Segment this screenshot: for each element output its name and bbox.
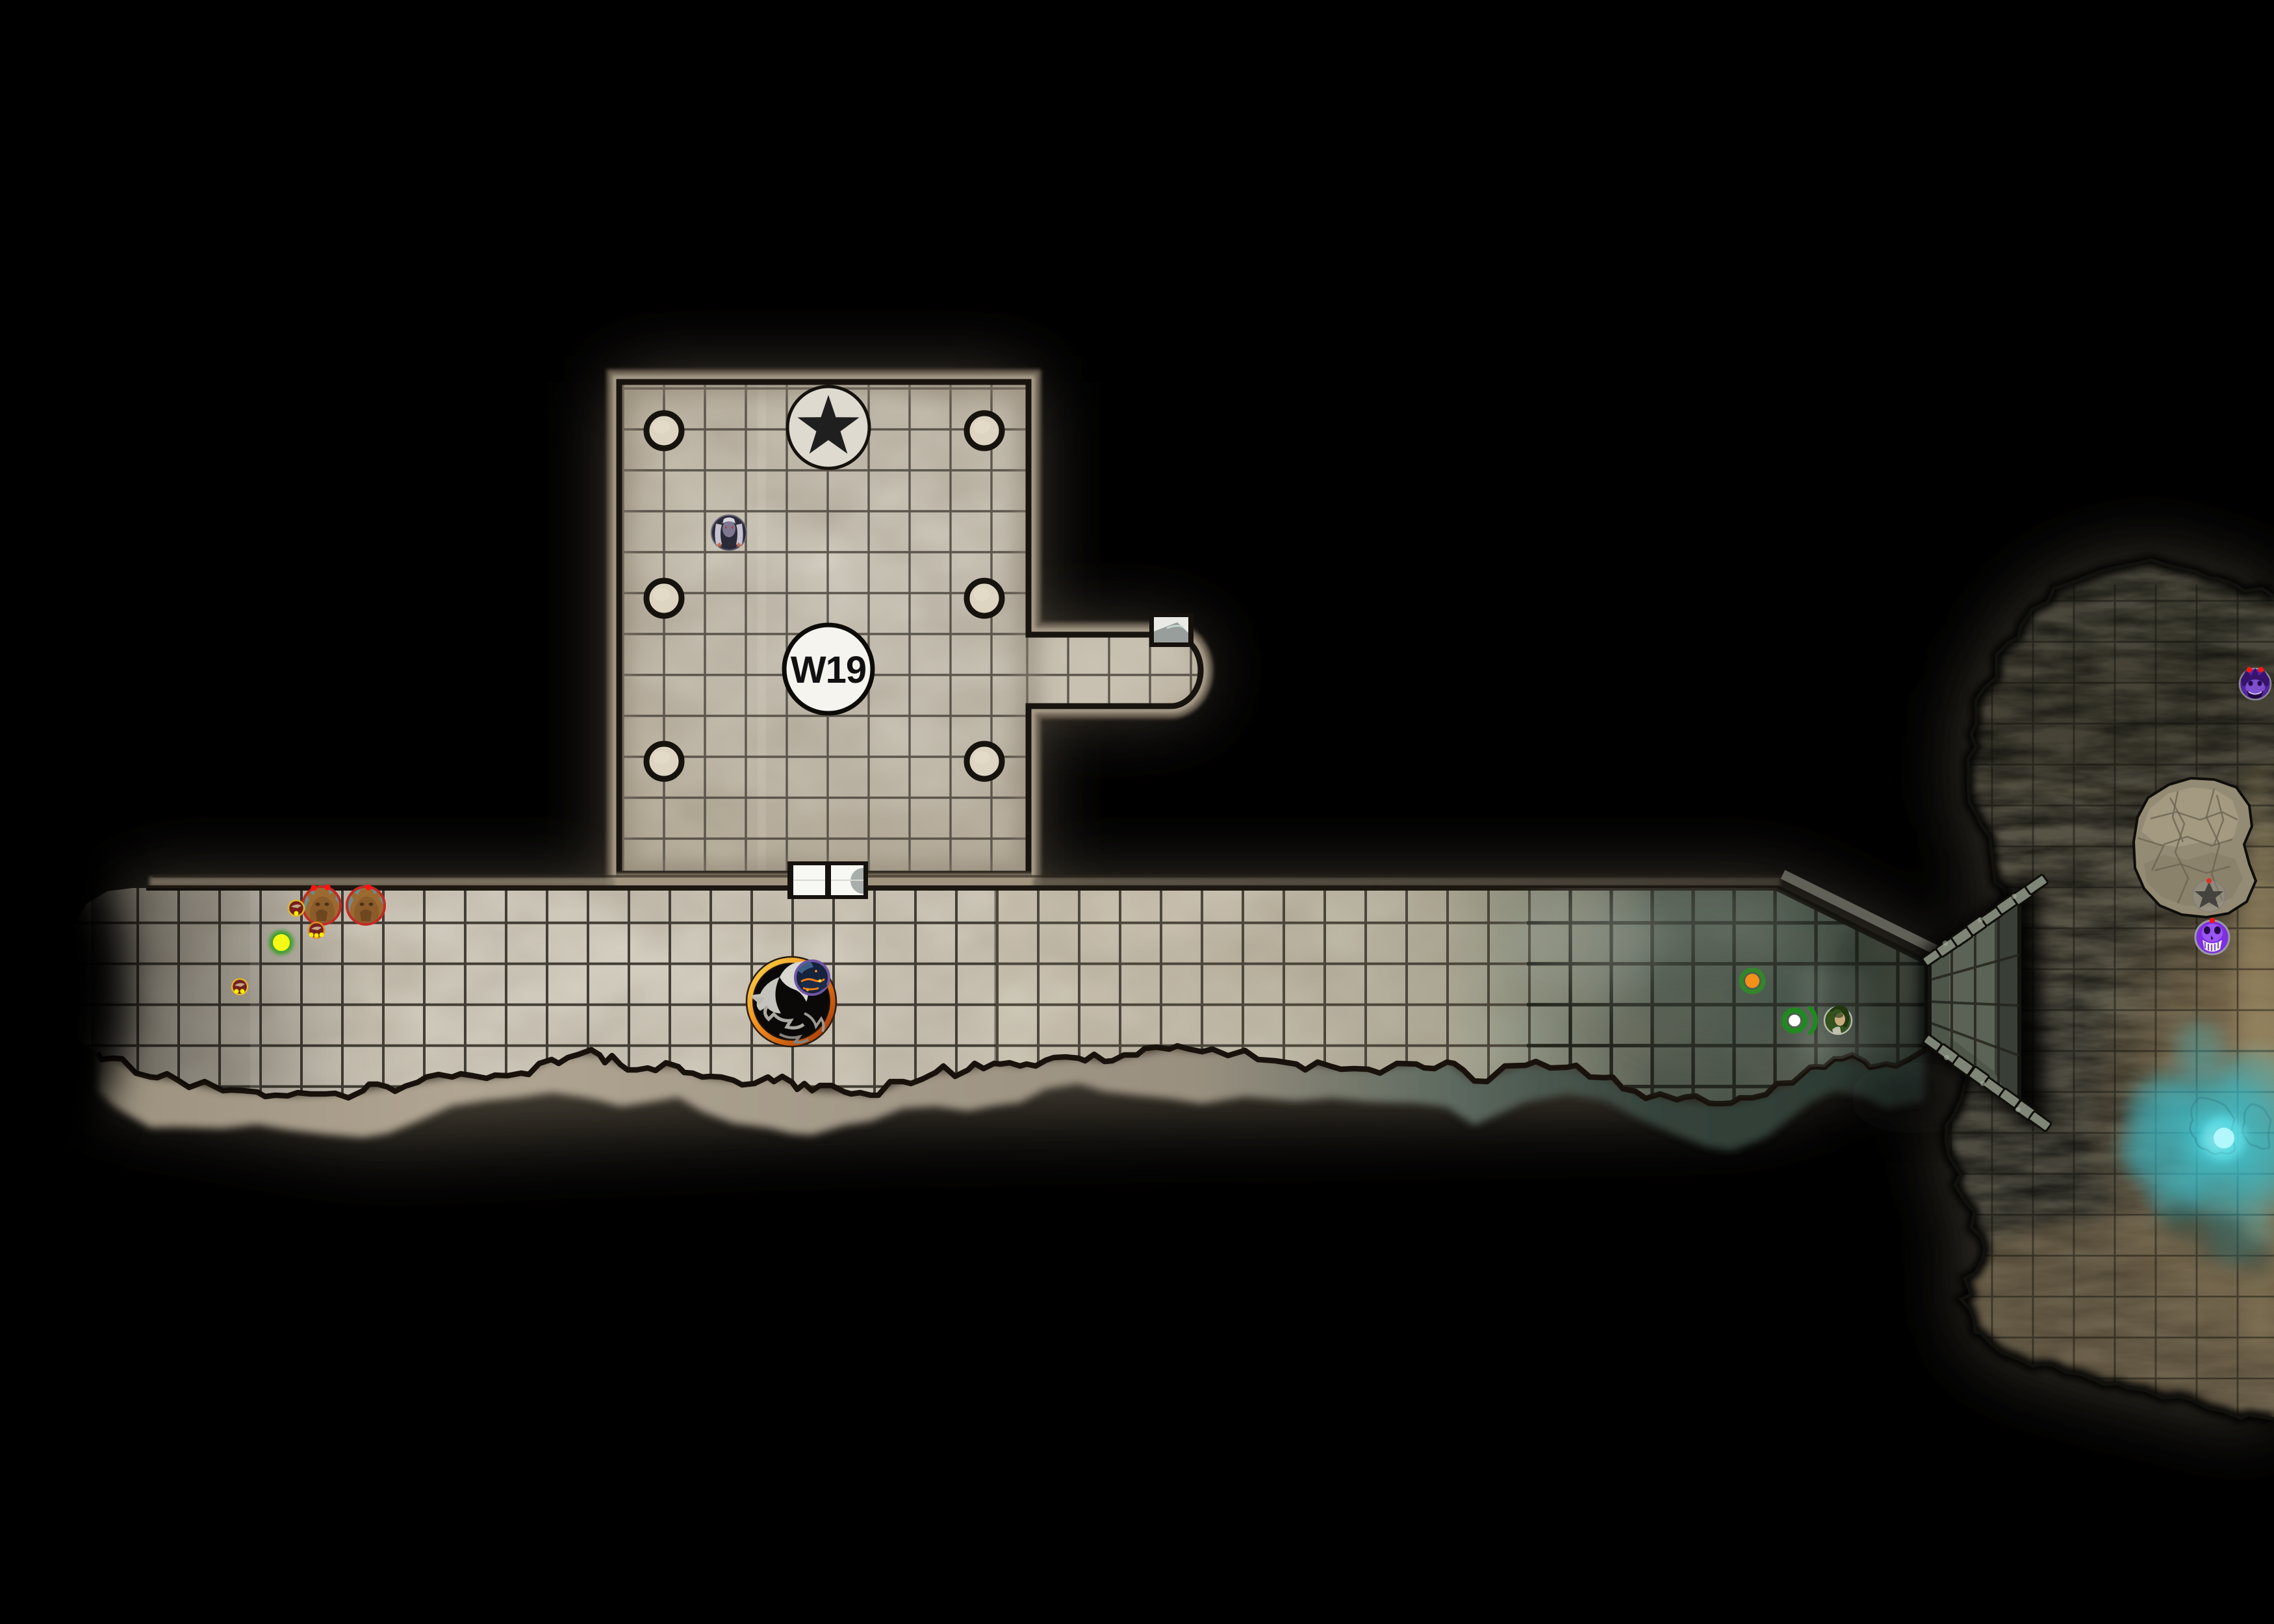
svg-text:W19: W19 <box>791 649 866 691</box>
